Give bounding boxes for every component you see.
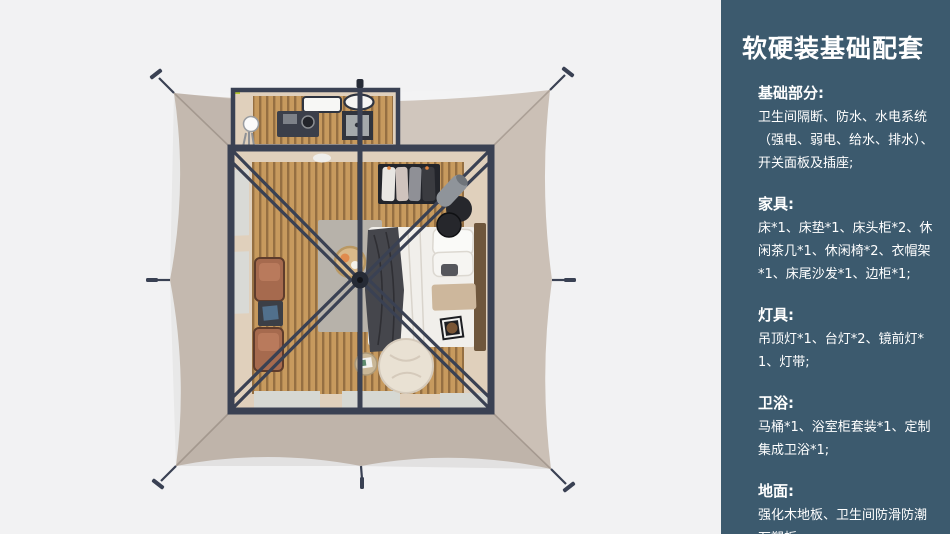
- chair-cushion: [259, 263, 280, 281]
- hanging-garment: [381, 167, 395, 201]
- section-body: 吊顶灯*1、台灯*2、镜前灯*1、灯带;: [758, 328, 935, 374]
- folded-blanket: [432, 283, 477, 311]
- section-body: 床*1、床垫*1、床头柜*2、休闲茶几*1、休闲椅*2、衣帽架*1、床尾沙发*1…: [758, 217, 935, 286]
- pouf: [437, 213, 461, 237]
- slide: 软硬装基础配套 基础部分: 卫生间隔断、防水、水电系统（强电、弱电、给水、排水）…: [0, 0, 950, 534]
- vanity-burner: [302, 116, 314, 128]
- canvas-shade-bottom: [176, 411, 551, 469]
- canvas-shade-left: [170, 93, 231, 466]
- section-body: 强化木地板、卫生间防滑防潮石塑板;: [758, 504, 935, 534]
- hanger-hook: [387, 166, 391, 170]
- bathroom-skylight: [303, 97, 341, 112]
- window-panel: [232, 169, 249, 236]
- spec-section-lighting: 灯具: 吊顶灯*1、台灯*2、镜前灯*1、灯带;: [758, 306, 935, 374]
- wardrobe-rack: [378, 164, 440, 204]
- hanging-garment: [408, 167, 421, 201]
- small-white-mat: [313, 154, 331, 163]
- hanging-garment: [421, 167, 435, 201]
- vanity-gadget: [283, 114, 297, 124]
- section-heading: 基础部分:: [758, 84, 935, 103]
- floor-mat: [342, 391, 400, 408]
- hanging-garment: [395, 167, 408, 201]
- chair-cushion: [258, 333, 279, 351]
- section-heading: 卫浴:: [758, 394, 935, 413]
- floor-tray: [440, 316, 465, 341]
- hanger-hook: [425, 166, 429, 170]
- pole-tip: [357, 79, 364, 88]
- book-on-table: [262, 305, 278, 320]
- spec-section-basics: 基础部分: 卫生间隔断、防水、水电系统（强电、弱电、给水、排水）、开关面板及插座…: [758, 84, 935, 175]
- window-panel: [232, 251, 249, 314]
- section-heading: 家具:: [758, 195, 935, 214]
- sidebar-title: 软硬装基础配套: [742, 34, 935, 64]
- floor-mat: [254, 391, 320, 408]
- spec-section-flooring: 地面: 强化木地板、卫生间防滑防潮石塑板;: [758, 482, 935, 534]
- spec-section-bathroom: 卫浴: 马桶*1、浴室柜套装*1、定制集成卫浴*1;: [758, 394, 935, 462]
- bathroom-area: [233, 90, 398, 148]
- bean-bag: [379, 339, 433, 393]
- bed: [365, 223, 486, 352]
- bathroom-mirror: [244, 117, 259, 132]
- spec-sidebar: 软硬装基础配套 基础部分: 卫生间隔断、防水、水电系统（强电、弱电、给水、排水）…: [721, 0, 950, 534]
- section-body: 马桶*1、浴室柜套装*1、定制集成卫浴*1;: [758, 416, 935, 462]
- spec-section-furniture: 家具: 床*1、床垫*1、床头柜*2、休闲茶几*1、休闲椅*2、衣帽架*1、床尾…: [758, 195, 935, 286]
- headboard: [474, 223, 486, 351]
- section-heading: 地面:: [758, 482, 935, 501]
- section-heading: 灯具:: [758, 306, 935, 325]
- hub-center: [357, 277, 363, 283]
- tent-top-view-render: [0, 0, 722, 534]
- section-body: 卫生间隔断、防水、水电系统（强电、弱电、给水、排水）、开关面板及插座;: [758, 106, 935, 175]
- accent-pillow: [441, 264, 458, 276]
